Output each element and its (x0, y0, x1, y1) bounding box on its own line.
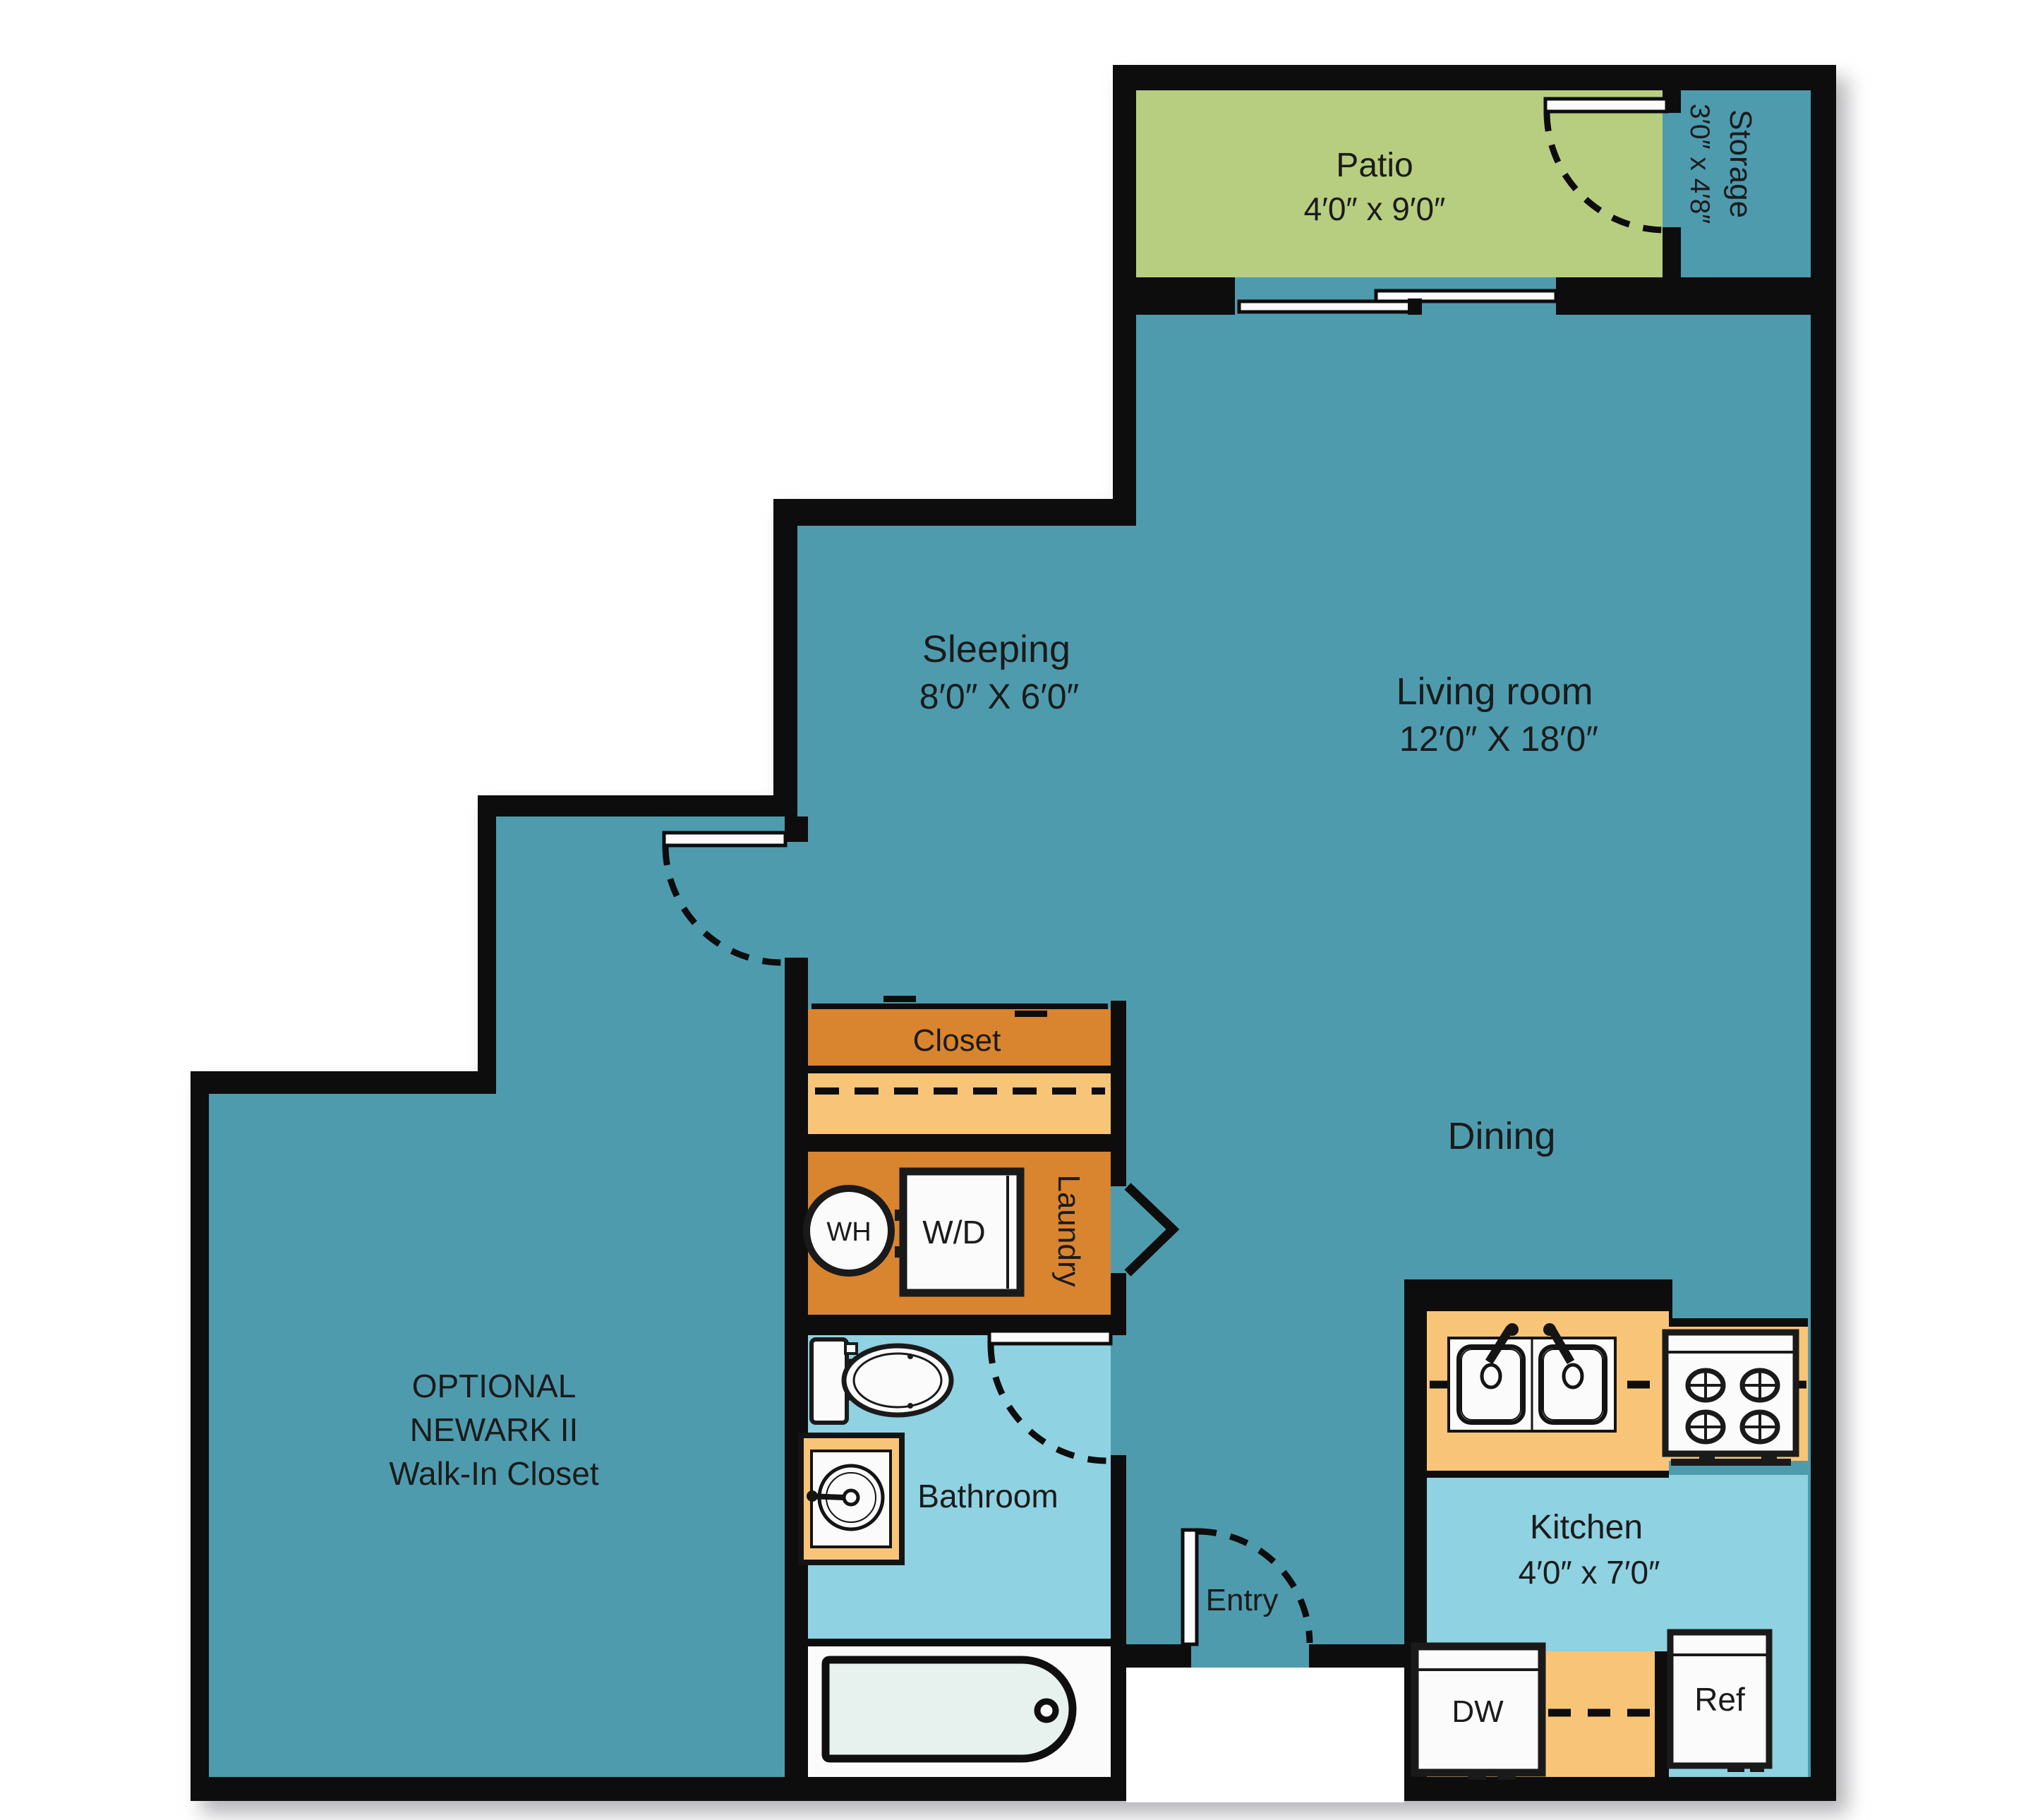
bathtub (826, 1660, 1073, 1759)
entry-exterior-notch (1126, 1668, 1404, 1802)
kitchen-top-wall (1404, 1279, 1672, 1311)
closet-divider-line (808, 1066, 1111, 1073)
closet-label: Closet (913, 1023, 1001, 1058)
bathroom-sink (801, 1435, 902, 1562)
kitchen-sink (1449, 1323, 1615, 1431)
hall-wall-upper-stub (785, 816, 808, 842)
washer-dryer-label: W/D (922, 1214, 985, 1251)
closet-shelf (808, 1073, 1111, 1134)
kitchen-label: Kitchen (1530, 1509, 1643, 1546)
patio-dims: 4′0″ x 9′0″ (1304, 191, 1446, 227)
kitchen-dims: 4′0″ x 7′0″ (1519, 1554, 1660, 1591)
patio-label: Patio (1336, 147, 1413, 184)
dishwasher-label: DW (1452, 1694, 1504, 1729)
entry-wall-left (1126, 1644, 1191, 1668)
hall-wall-lower (785, 958, 808, 1801)
patio-wall-left (1113, 277, 1235, 315)
closet-bottom-wall (808, 1134, 1111, 1152)
refrigerator-label: Ref (1694, 1681, 1745, 1718)
kitchen-lower-divider-wall (1655, 1651, 1669, 1777)
walkin-line1: OPTIONAL (412, 1368, 577, 1404)
entry-label: Entry (1206, 1583, 1279, 1617)
laundry-label: Laundry (1051, 1174, 1086, 1286)
living-room-label: Living room (1396, 670, 1593, 713)
toilet (812, 1339, 951, 1423)
column-right-wall-mid (1111, 1273, 1126, 1334)
entry-wall-right (1309, 1644, 1418, 1668)
storage-dims: 3′0″ x 4′8″ (1684, 104, 1715, 224)
living-room-dims: 12′0″ X 18′0″ (1399, 719, 1598, 759)
patio-wall-right (1556, 277, 1836, 315)
sleeping-dims: 8′0″ X 6′0″ (919, 677, 1080, 716)
walkin-line2: NEWARK II (410, 1411, 579, 1448)
dining-label: Dining (1447, 1115, 1555, 1157)
storage-wall-stub-bottom (1663, 227, 1681, 279)
floor-plan-page: Patio 4′0″ x 9′0″ Storage 3′0″ x 4′8″ Sl… (0, 0, 2021, 1820)
column-right-wall-top (1111, 1001, 1126, 1186)
walkin-line3: Walk-In Closet (389, 1455, 599, 1492)
kitchen-counter-edge (1427, 1471, 1669, 1478)
storage-label: Storage (1723, 109, 1758, 218)
floor-plan-drawing: Patio 4′0″ x 9′0″ Storage 3′0″ x 4′8″ Sl… (0, 0, 2021, 1820)
sleeping-label: Sleeping (922, 628, 1070, 670)
bathroom-tub-divider (804, 1639, 1113, 1646)
bathroom-label: Bathroom (917, 1478, 1058, 1514)
water-heater-label: WH (826, 1217, 871, 1247)
column-right-wall-bottom (1111, 1455, 1126, 1801)
stove (1665, 1332, 1796, 1466)
